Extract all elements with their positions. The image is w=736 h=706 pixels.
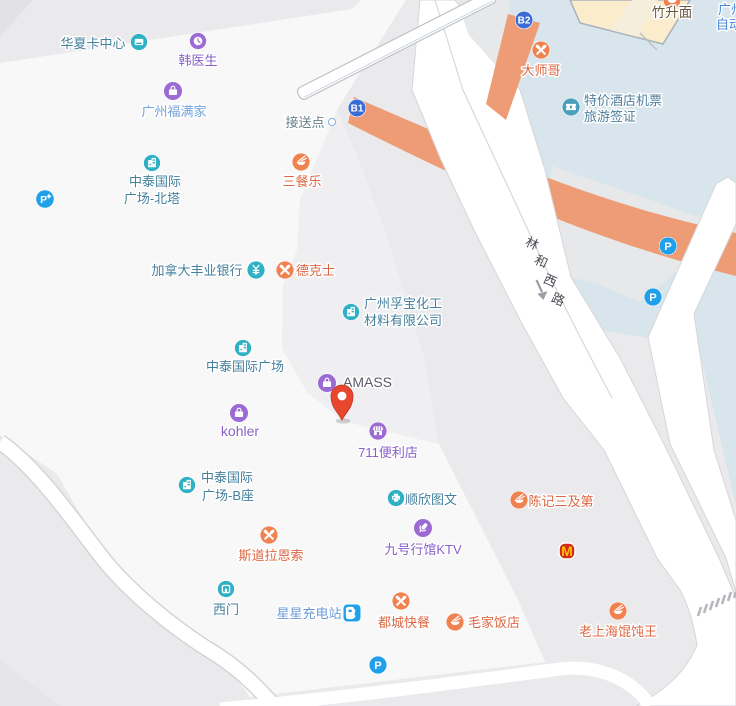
svg-text:韩医生: 韩医生	[178, 53, 217, 68]
svg-text:老上海馄饨王: 老上海馄饨王	[579, 624, 657, 639]
svg-text:广场-B座: 广场-B座	[202, 488, 254, 503]
svg-text:毛家饭店: 毛家饭店	[468, 615, 520, 630]
svg-text:中泰国际: 中泰国际	[129, 174, 181, 189]
svg-text:B2: B2	[518, 16, 531, 27]
svg-text:陈记三及第: 陈记三及第	[528, 494, 593, 509]
svg-text:特价酒店机票: 特价酒店机票	[584, 93, 662, 108]
svg-text:加拿大丰业银行: 加拿大丰业银行	[151, 263, 242, 278]
svg-text:自动: 自动	[716, 17, 736, 32]
svg-text:广州: 广州	[718, 2, 736, 17]
svg-text:M: M	[561, 543, 573, 559]
svg-text:中泰国际: 中泰国际	[201, 470, 253, 485]
svg-text:德克士: 德克士	[296, 263, 335, 278]
svg-text:材料有限公司: 材料有限公司	[364, 313, 442, 328]
svg-text:广州孚宝化工: 广州孚宝化工	[364, 296, 442, 311]
svg-text:旅游签证: 旅游签证	[584, 109, 636, 124]
svg-text:广州福满家: 广州福满家	[141, 104, 206, 119]
svg-text:B1: B1	[351, 104, 364, 115]
svg-text:711便利店: 711便利店	[358, 445, 418, 460]
svg-text:接送点: 接送点	[285, 115, 324, 130]
svg-text:西门: 西门	[213, 602, 239, 617]
svg-text:广场-北塔: 广场-北塔	[124, 191, 180, 206]
svg-text:九号行馆KTV: 九号行馆KTV	[384, 542, 462, 557]
svg-text:AMASS: AMASS	[343, 374, 392, 390]
svg-text:三餐乐: 三餐乐	[282, 174, 321, 189]
svg-text:斯道拉恩索: 斯道拉恩索	[238, 548, 303, 563]
svg-text:大师哥: 大师哥	[521, 63, 560, 78]
svg-text:P: P	[40, 194, 47, 206]
svg-text:星星充电站: 星星充电站	[276, 606, 341, 621]
svg-text:竹升面: 竹升面	[652, 5, 693, 20]
svg-text:中泰国际广场: 中泰国际广场	[206, 359, 284, 374]
svg-text:都城快餐: 都城快餐	[378, 615, 430, 630]
svg-text:顺欣图文: 顺欣图文	[405, 492, 457, 507]
svg-text:kohler: kohler	[221, 423, 259, 439]
svg-text:华夏卡中心: 华夏卡中心	[60, 36, 125, 51]
